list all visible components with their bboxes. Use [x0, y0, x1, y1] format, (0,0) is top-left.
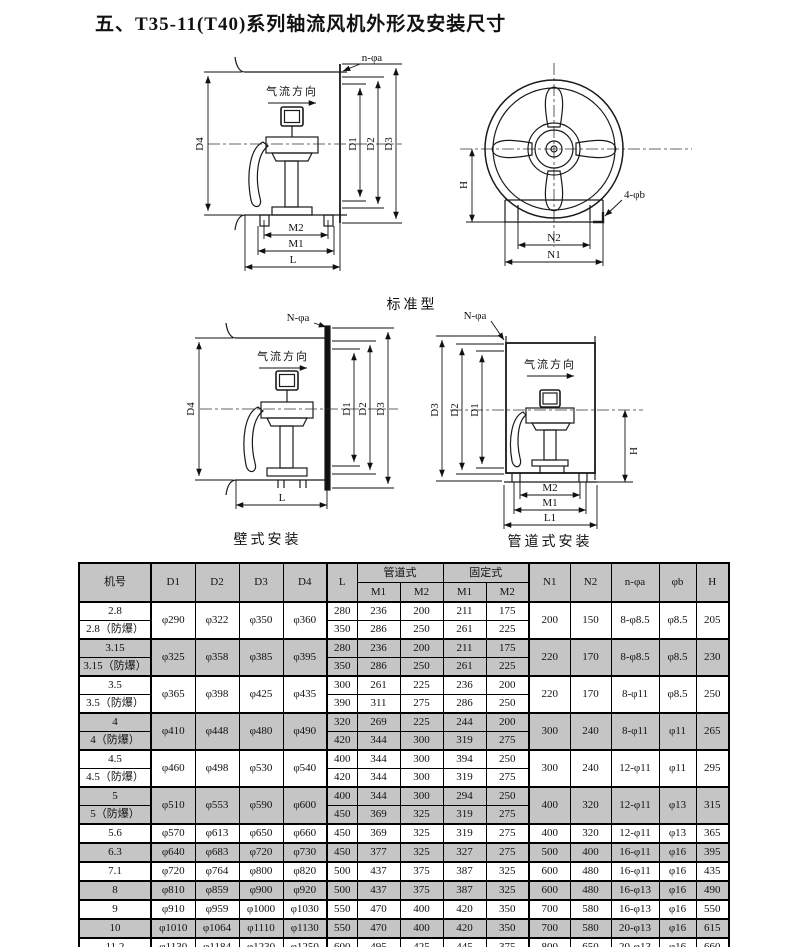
tail-cell: 16-φ13 — [611, 900, 659, 919]
bolt-holes-label: 4-φb — [624, 189, 646, 201]
diameter-cell: φ290 — [151, 602, 195, 639]
tail-cell: 240 — [570, 750, 611, 787]
tail-cell: 315 — [696, 787, 729, 824]
value-cell: 450 — [327, 806, 357, 825]
tail-cell: φ13 — [659, 787, 696, 824]
dim-label-d3: D3 — [383, 137, 395, 151]
tail-cell: 700 — [529, 900, 570, 919]
model-cell: 5（防爆） — [79, 806, 151, 825]
value-cell: 250 — [400, 658, 443, 677]
document-page: 五、T35-11(T40)系列轴流风机外形及安装尺寸 — [0, 0, 800, 947]
tail-cell: 8-φ11 — [611, 713, 659, 750]
bolt-holes-label: n-φa — [362, 52, 383, 64]
diameter-cell: φ720 — [239, 843, 283, 862]
value-cell: 236 — [357, 602, 400, 621]
diameter-cell: φ1130 — [151, 938, 195, 947]
diameter-cell: φ460 — [151, 750, 195, 787]
value-cell: 200 — [486, 676, 529, 695]
diameter-cell: φ1010 — [151, 919, 195, 938]
value-cell: 300 — [400, 750, 443, 769]
value-cell: 280 — [327, 602, 357, 621]
table-row: 3.15φ325φ358φ385φ39528023620021117522017… — [79, 639, 729, 658]
diameter-cell: φ800 — [239, 862, 283, 881]
value-cell: 275 — [486, 806, 529, 825]
header-d1: D1 — [151, 563, 195, 602]
value-cell: 394 — [443, 750, 486, 769]
value-cell: 236 — [357, 639, 400, 658]
bolt-holes-label: N-φa — [287, 312, 310, 324]
tail-cell: 600 — [529, 862, 570, 881]
value-cell: 261 — [443, 621, 486, 640]
table-header-row: 机号 D1 D2 D3 D4 L 管道式 固定式 N1 N2 n-φa φb H — [79, 563, 729, 583]
value-cell: 325 — [400, 806, 443, 825]
dim-label-d2: D2 — [357, 402, 369, 415]
header-h: H — [696, 563, 729, 602]
dim-label-l1: L1 — [544, 512, 556, 524]
tail-cell: 300 — [529, 750, 570, 787]
dim-label-d4: D4 — [194, 137, 206, 151]
value-cell: 470 — [357, 919, 400, 938]
dim-label-m2: M2 — [288, 222, 303, 234]
tail-cell: φ16 — [659, 938, 696, 947]
diameter-cell: φ1184 — [195, 938, 239, 947]
wall-mount-diagram: 气流方向 N-φa D4 D1 D2 D3 L — [148, 312, 453, 530]
diameter-cell: φ613 — [195, 824, 239, 843]
diameter-cell: φ640 — [151, 843, 195, 862]
dim-label-d2: D2 — [365, 137, 377, 150]
dimension-table: 机号 D1 D2 D3 D4 L 管道式 固定式 N1 N2 n-φa φb H… — [78, 562, 730, 947]
dim-label-d4: D4 — [185, 402, 197, 416]
diameter-cell: φ398 — [195, 676, 239, 713]
value-cell: 375 — [400, 862, 443, 881]
value-cell: 275 — [486, 843, 529, 862]
diameter-cell: φ1064 — [195, 919, 239, 938]
diameter-cell: φ859 — [195, 881, 239, 900]
front-view-diagram: 4-φb H N2 N1 — [452, 55, 747, 300]
table-row: 11.2φ1130φ1184φ1230φ12506004954254453758… — [79, 938, 729, 947]
tail-cell: 230 — [696, 639, 729, 676]
value-cell: 350 — [327, 658, 357, 677]
value-cell: 211 — [443, 639, 486, 658]
model-cell: 6.3 — [79, 843, 151, 862]
table-row: 6.3φ640φ683φ720φ730450377325327275500400… — [79, 843, 729, 862]
value-cell: 236 — [443, 676, 486, 695]
tail-cell: φ8.5 — [659, 676, 696, 713]
value-cell: 225 — [486, 658, 529, 677]
dim-label-l: L — [290, 254, 297, 266]
table-row: 5φ510φ553φ590φ60040034430029425040032012… — [79, 787, 729, 806]
dim-label-h: H — [628, 447, 640, 455]
value-cell: 311 — [357, 695, 400, 714]
table-row: 7.1φ720φ764φ800φ820500437375387325600480… — [79, 862, 729, 881]
value-cell: 600 — [327, 938, 357, 947]
tail-cell: 250 — [696, 676, 729, 713]
diameter-cell: φ553 — [195, 787, 239, 824]
dim-label-d1: D1 — [469, 403, 481, 416]
value-cell: 420 — [327, 769, 357, 788]
diameter-cell: φ1250 — [283, 938, 327, 947]
diameter-cell: φ660 — [283, 824, 327, 843]
value-cell: 319 — [443, 824, 486, 843]
tail-cell: 580 — [570, 919, 611, 938]
value-cell: 286 — [357, 658, 400, 677]
value-cell: 325 — [400, 824, 443, 843]
diameter-cell: φ1110 — [239, 919, 283, 938]
tail-cell: φ8.5 — [659, 639, 696, 676]
tail-cell: 220 — [529, 676, 570, 713]
diameter-cell: φ570 — [151, 824, 195, 843]
tail-cell: 500 — [529, 843, 570, 862]
diameter-cell: φ498 — [195, 750, 239, 787]
value-cell: 437 — [357, 862, 400, 881]
dim-label-d3: D3 — [375, 402, 387, 416]
header-d2: D2 — [195, 563, 239, 602]
value-cell: 344 — [357, 732, 400, 751]
diameter-cell: φ410 — [151, 713, 195, 750]
tail-cell: 8-φ8.5 — [611, 602, 659, 639]
header-fixed-m2: M2 — [486, 583, 529, 603]
dim-label-d2: D2 — [449, 403, 461, 416]
diameter-cell: φ720 — [151, 862, 195, 881]
value-cell: 225 — [400, 676, 443, 695]
value-cell: 420 — [443, 919, 486, 938]
bolt-holes-label: N-φa — [464, 310, 487, 322]
tail-cell: φ16 — [659, 919, 696, 938]
tail-cell: 240 — [570, 713, 611, 750]
value-cell: 369 — [357, 806, 400, 825]
diameter-cell: φ1030 — [283, 900, 327, 919]
diameter-cell: φ530 — [239, 750, 283, 787]
model-cell: 4 — [79, 713, 151, 732]
value-cell: 350 — [486, 900, 529, 919]
model-cell: 2.8（防爆） — [79, 621, 151, 640]
value-cell: 225 — [400, 713, 443, 732]
diameter-cell: φ1130 — [283, 919, 327, 938]
value-cell: 344 — [357, 750, 400, 769]
dim-label-m2: M2 — [542, 482, 557, 494]
diameter-cell: φ425 — [239, 676, 283, 713]
value-cell: 300 — [400, 769, 443, 788]
value-cell: 275 — [486, 824, 529, 843]
value-cell: 275 — [400, 695, 443, 714]
dim-label-n1: N1 — [547, 249, 560, 261]
value-cell: 375 — [486, 938, 529, 947]
diameter-cell: φ820 — [283, 862, 327, 881]
diameter-cell: φ1230 — [239, 938, 283, 947]
value-cell: 286 — [443, 695, 486, 714]
tail-cell: 320 — [570, 787, 611, 824]
tail-cell: 8-φ11 — [611, 676, 659, 713]
value-cell: 244 — [443, 713, 486, 732]
diameter-cell: φ650 — [239, 824, 283, 843]
value-cell: 470 — [357, 900, 400, 919]
value-cell: 344 — [357, 787, 400, 806]
value-cell: 400 — [400, 919, 443, 938]
dim-label-h: H — [458, 181, 470, 189]
table-row: 4φ410φ448φ480φ4903202692252442003002408-… — [79, 713, 729, 732]
value-cell: 450 — [327, 824, 357, 843]
value-cell: 200 — [400, 602, 443, 621]
diameter-cell: φ900 — [239, 881, 283, 900]
tail-cell: 265 — [696, 713, 729, 750]
value-cell: 450 — [327, 843, 357, 862]
value-cell: 350 — [486, 919, 529, 938]
value-cell: 377 — [357, 843, 400, 862]
diameter-cell: φ910 — [151, 900, 195, 919]
dim-label-n2: N2 — [547, 232, 560, 244]
airflow-label: 气流方向 — [524, 357, 576, 371]
duct-mount-diagram: 气流方向 N-φa D3 D2 D1 H M2 M1 L1 — [428, 305, 728, 530]
tail-cell: φ16 — [659, 843, 696, 862]
tail-cell: 150 — [570, 602, 611, 639]
tail-cell: 220 — [529, 639, 570, 676]
diameter-cell: φ360 — [283, 602, 327, 639]
value-cell: 325 — [486, 881, 529, 900]
tail-cell: 550 — [696, 900, 729, 919]
tail-cell: 400 — [529, 787, 570, 824]
value-cell: 250 — [400, 621, 443, 640]
value-cell: 225 — [486, 621, 529, 640]
value-cell: 300 — [400, 787, 443, 806]
diameter-cell: φ480 — [239, 713, 283, 750]
diameter-cell: φ365 — [151, 676, 195, 713]
value-cell: 294 — [443, 787, 486, 806]
tail-cell: 480 — [570, 862, 611, 881]
diameter-cell: φ385 — [239, 639, 283, 676]
value-cell: 319 — [443, 806, 486, 825]
diameter-cell: φ510 — [151, 787, 195, 824]
table-row: 8φ810φ859φ900φ92050043737538732560048016… — [79, 881, 729, 900]
caption-duct-mount: 管道式安装 — [490, 531, 610, 551]
page-title: 五、T35-11(T40)系列轴流风机外形及安装尺寸 — [95, 9, 506, 36]
value-cell: 250 — [486, 750, 529, 769]
dim-label-l: L — [279, 492, 286, 504]
model-cell: 3.15（防爆） — [79, 658, 151, 677]
tail-cell: 660 — [696, 938, 729, 947]
model-cell: 3.15 — [79, 639, 151, 658]
value-cell: 437 — [357, 881, 400, 900]
table-row: 5.6φ570φ613φ650φ660450369325319275400320… — [79, 824, 729, 843]
model-cell: 4.5 — [79, 750, 151, 769]
model-cell: 8 — [79, 881, 151, 900]
airflow-label: 气流方向 — [266, 84, 318, 98]
value-cell: 500 — [327, 881, 357, 900]
tail-cell: 580 — [570, 900, 611, 919]
tail-cell: 480 — [570, 881, 611, 900]
airflow-label: 气流方向 — [257, 349, 309, 363]
model-cell: 3.5（防爆） — [79, 695, 151, 714]
diameter-cell: φ350 — [239, 602, 283, 639]
header-model: 机号 — [79, 563, 151, 602]
value-cell: 445 — [443, 938, 486, 947]
tail-cell: 12-φ11 — [611, 824, 659, 843]
value-cell: 280 — [327, 639, 357, 658]
value-cell: 327 — [443, 843, 486, 862]
header-duct-m2: M2 — [400, 583, 443, 603]
value-cell: 495 — [357, 938, 400, 947]
tail-cell: φ16 — [659, 900, 696, 919]
diameter-cell: φ540 — [283, 750, 327, 787]
header-n1: N1 — [529, 563, 570, 602]
diameter-cell: φ590 — [239, 787, 283, 824]
tail-cell: 300 — [529, 713, 570, 750]
value-cell: 319 — [443, 769, 486, 788]
value-cell: 200 — [400, 639, 443, 658]
tail-cell: 400 — [529, 824, 570, 843]
diameter-cell: φ490 — [283, 713, 327, 750]
value-cell: 275 — [486, 732, 529, 751]
table-row: 2.8φ290φ322φ350φ360280236200211175200150… — [79, 602, 729, 621]
tail-cell: 320 — [570, 824, 611, 843]
value-cell: 387 — [443, 862, 486, 881]
diameter-cell: φ448 — [195, 713, 239, 750]
tail-cell: 490 — [696, 881, 729, 900]
diameter-cell: φ730 — [283, 843, 327, 862]
value-cell: 325 — [400, 843, 443, 862]
dim-label-d1: D1 — [347, 137, 359, 150]
tail-cell: 8-φ8.5 — [611, 639, 659, 676]
diameter-cell: φ683 — [195, 843, 239, 862]
dim-label-m1: M1 — [542, 497, 557, 509]
value-cell: 400 — [400, 900, 443, 919]
tail-cell: 16-φ13 — [611, 881, 659, 900]
value-cell: 350 — [327, 621, 357, 640]
value-cell: 420 — [327, 732, 357, 751]
value-cell: 400 — [327, 787, 357, 806]
model-cell: 5 — [79, 787, 151, 806]
tail-cell: 600 — [529, 881, 570, 900]
header-n-phi-a: n-φa — [611, 563, 659, 602]
tail-cell: 395 — [696, 843, 729, 862]
value-cell: 211 — [443, 602, 486, 621]
model-cell: 9 — [79, 900, 151, 919]
table-row: 4.5φ460φ498φ530φ540400344300394250300240… — [79, 750, 729, 769]
tail-cell: φ11 — [659, 713, 696, 750]
value-cell: 375 — [400, 881, 443, 900]
model-cell: 4（防爆） — [79, 732, 151, 751]
tail-cell: φ16 — [659, 862, 696, 881]
tail-cell: 700 — [529, 919, 570, 938]
value-cell: 250 — [486, 787, 529, 806]
value-cell: 550 — [327, 900, 357, 919]
standard-side-view-diagram: 气流方向 n-φa D4 D1 D2 D3 M2 M1 L — [150, 50, 455, 290]
value-cell: 300 — [400, 732, 443, 751]
dim-label-m1: M1 — [288, 238, 303, 250]
value-cell: 275 — [486, 769, 529, 788]
diameter-cell: φ959 — [195, 900, 239, 919]
diameter-cell: φ395 — [283, 639, 327, 676]
dim-label-d1: D1 — [341, 402, 353, 415]
value-cell: 200 — [486, 713, 529, 732]
value-cell: 320 — [327, 713, 357, 732]
table-row: 3.5φ365φ398φ425φ435300261225236200220170… — [79, 676, 729, 695]
tail-cell: 400 — [570, 843, 611, 862]
model-cell: 5.6 — [79, 824, 151, 843]
tail-cell: 205 — [696, 602, 729, 639]
model-cell: 10 — [79, 919, 151, 938]
value-cell: 250 — [486, 695, 529, 714]
value-cell: 175 — [486, 639, 529, 658]
tail-cell: 615 — [696, 919, 729, 938]
tail-cell: 170 — [570, 639, 611, 676]
model-cell: 2.8 — [79, 602, 151, 621]
tail-cell: 435 — [696, 862, 729, 881]
diameter-cell: φ435 — [283, 676, 327, 713]
caption-wall-mount: 壁式安装 — [200, 529, 335, 549]
tail-cell: φ8.5 — [659, 602, 696, 639]
value-cell: 550 — [327, 919, 357, 938]
header-fixed-m1: M1 — [443, 583, 486, 603]
header-duct-type: 管道式 — [357, 563, 443, 583]
tail-cell: 12-φ11 — [611, 787, 659, 824]
tail-cell: 16-φ11 — [611, 843, 659, 862]
dim-label-d3: D3 — [429, 403, 441, 417]
diameter-cell: φ810 — [151, 881, 195, 900]
diameter-cell: φ322 — [195, 602, 239, 639]
value-cell: 425 — [400, 938, 443, 947]
diameter-cell: φ1000 — [239, 900, 283, 919]
value-cell: 286 — [357, 621, 400, 640]
tail-cell: 170 — [570, 676, 611, 713]
value-cell: 300 — [327, 676, 357, 695]
header-d4: D4 — [283, 563, 327, 602]
tail-cell: 365 — [696, 824, 729, 843]
tail-cell: 20-φ13 — [611, 938, 659, 947]
value-cell: 175 — [486, 602, 529, 621]
model-cell: 7.1 — [79, 862, 151, 881]
tail-cell: 20-φ13 — [611, 919, 659, 938]
value-cell: 369 — [357, 824, 400, 843]
diameter-cell: φ600 — [283, 787, 327, 824]
value-cell: 500 — [327, 862, 357, 881]
model-cell: 3.5 — [79, 676, 151, 695]
header-phi-b: φb — [659, 563, 696, 602]
value-cell: 325 — [486, 862, 529, 881]
value-cell: 269 — [357, 713, 400, 732]
value-cell: 319 — [443, 732, 486, 751]
tail-cell: 800 — [529, 938, 570, 947]
tail-cell: 16-φ11 — [611, 862, 659, 881]
tail-cell: φ16 — [659, 881, 696, 900]
model-cell: 11.2 — [79, 938, 151, 947]
value-cell: 420 — [443, 900, 486, 919]
tail-cell: 200 — [529, 602, 570, 639]
diameter-cell: φ920 — [283, 881, 327, 900]
diameter-cell: φ764 — [195, 862, 239, 881]
header-fixed-type: 固定式 — [443, 563, 529, 583]
header-d3: D3 — [239, 563, 283, 602]
diameter-cell: φ358 — [195, 639, 239, 676]
header-duct-m1: M1 — [357, 583, 400, 603]
tail-cell: 295 — [696, 750, 729, 787]
model-cell: 4.5（防爆） — [79, 769, 151, 788]
wall-flange — [325, 326, 330, 490]
diameter-cell: φ325 — [151, 639, 195, 676]
tail-cell: 12-φ11 — [611, 750, 659, 787]
value-cell: 387 — [443, 881, 486, 900]
tail-cell: φ13 — [659, 824, 696, 843]
table-row: 10φ1010φ1064φ1110φ1130550470400420350700… — [79, 919, 729, 938]
value-cell: 390 — [327, 695, 357, 714]
value-cell: 400 — [327, 750, 357, 769]
value-cell: 344 — [357, 769, 400, 788]
header-n2: N2 — [570, 563, 611, 602]
table-row: 9φ910φ959φ1000φ1030550470400420350700580… — [79, 900, 729, 919]
value-cell: 261 — [357, 676, 400, 695]
header-l: L — [327, 563, 357, 602]
value-cell: 261 — [443, 658, 486, 677]
tail-cell: 650 — [570, 938, 611, 947]
